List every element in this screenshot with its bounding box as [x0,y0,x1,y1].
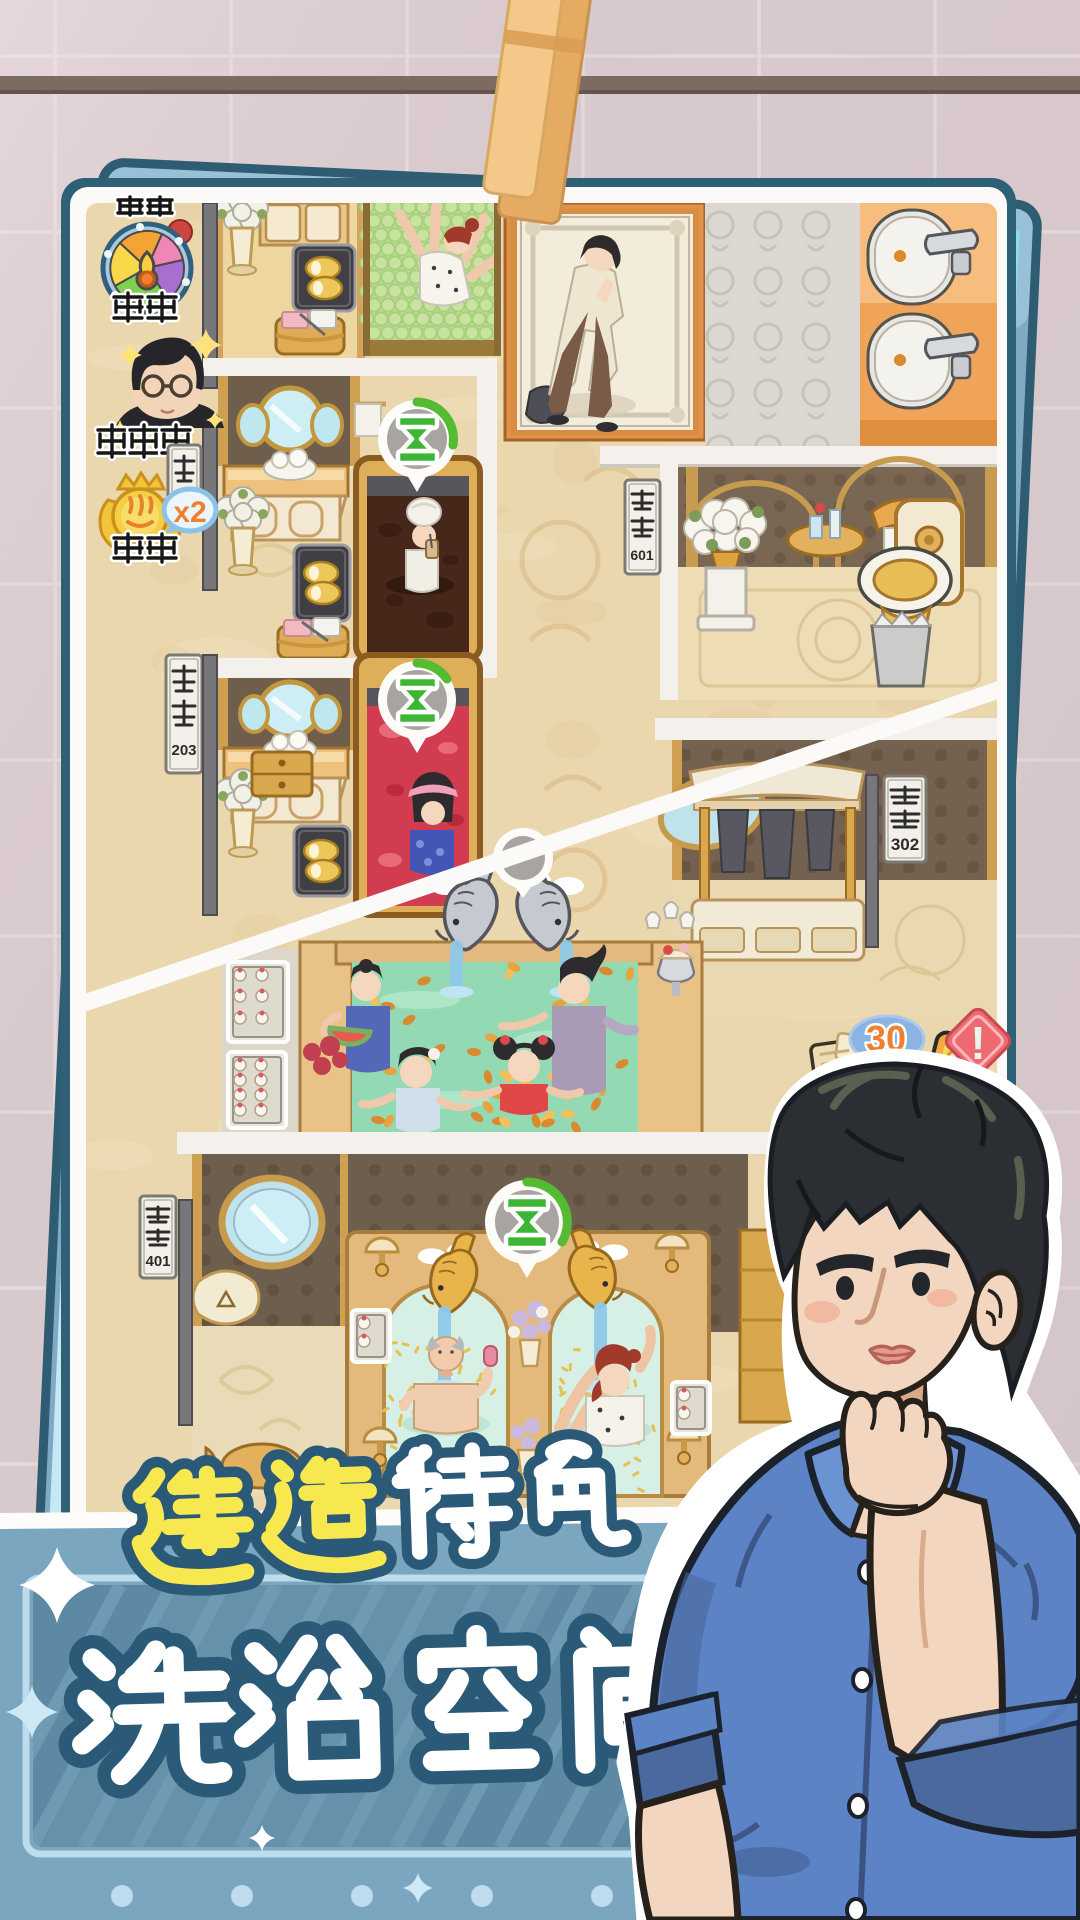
svg-text:203: 203 [171,742,196,759]
svg-text:401: 401 [145,1253,170,1270]
svg-text:601: 601 [630,547,654,563]
svg-text:302: 302 [891,835,919,854]
svg-text:x2: x2 [173,496,206,529]
svg-text:!: ! [970,1017,985,1069]
